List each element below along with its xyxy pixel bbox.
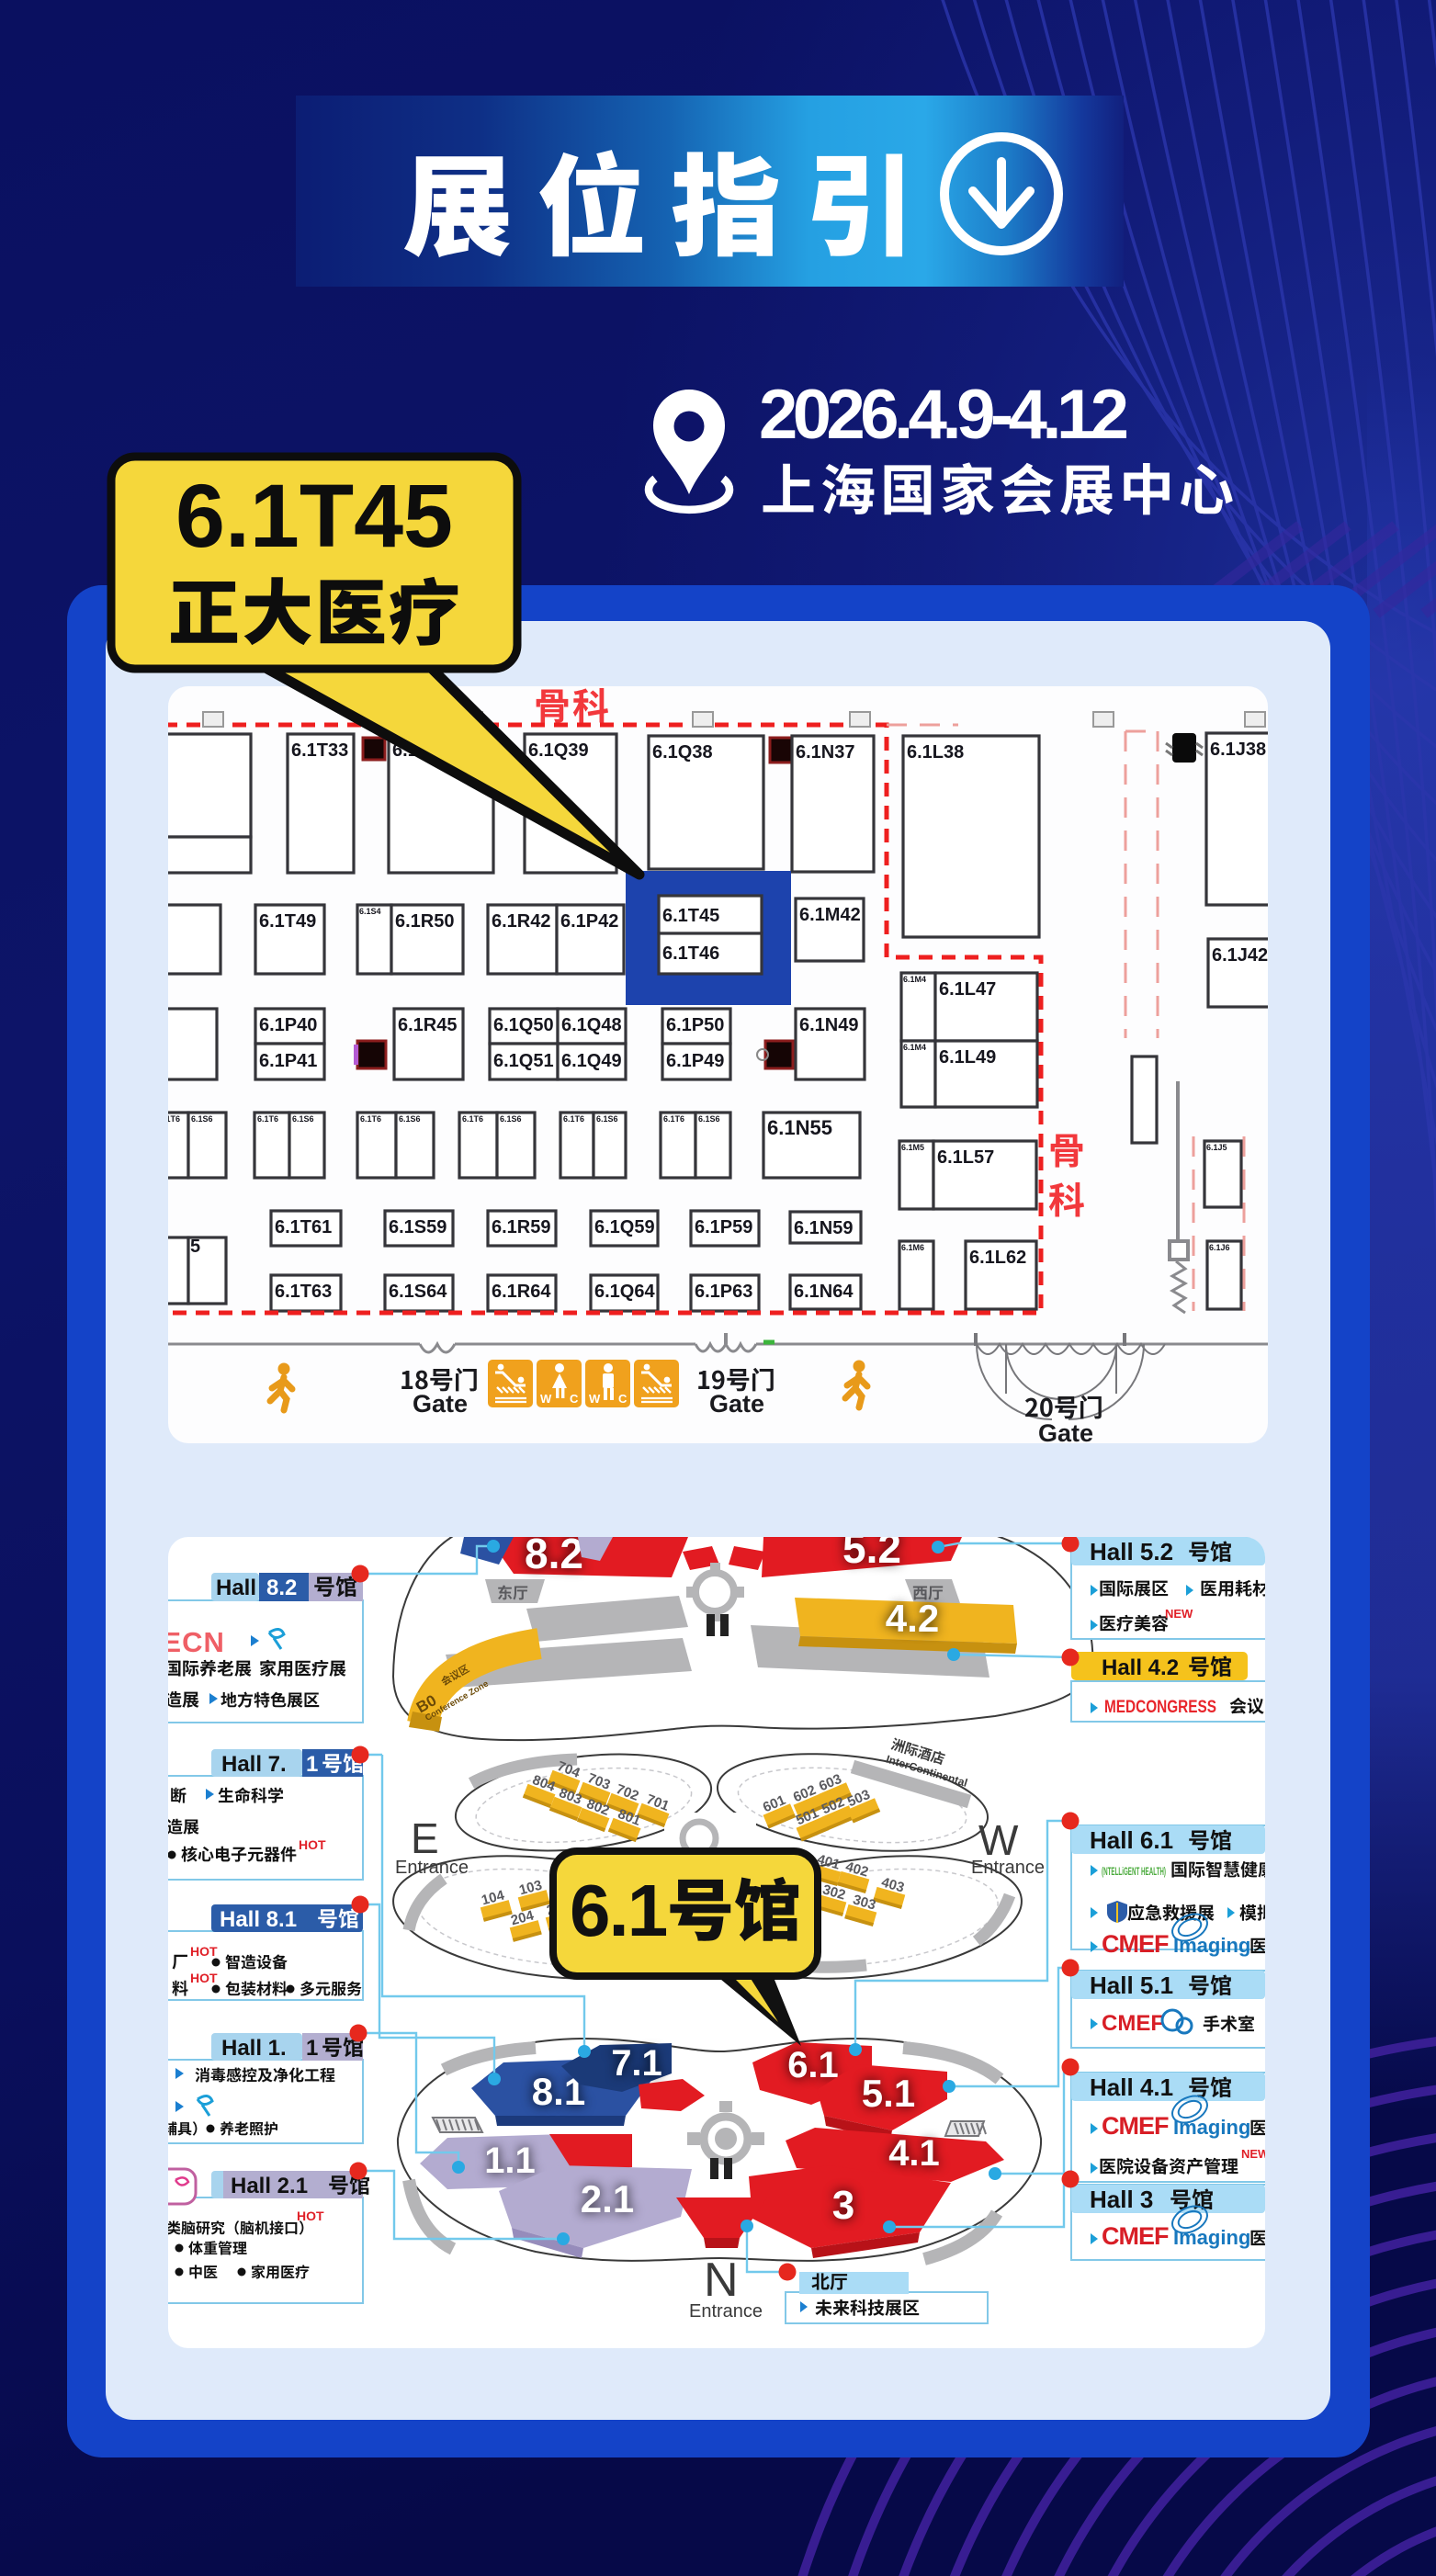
- svg-text:Entrance: Entrance: [689, 2301, 763, 2322]
- svg-text:W: W: [540, 1392, 552, 1406]
- svg-text:Entrance: Entrance: [971, 1858, 1045, 1878]
- svg-text:CMEF: CMEF: [1102, 1930, 1169, 1958]
- svg-text:Hall 5.2: Hall 5.2: [1090, 1538, 1173, 1565]
- svg-text:Gate: Gate: [709, 1390, 764, 1418]
- svg-text:6.1R64: 6.1R64: [492, 1282, 551, 1302]
- svg-text:Hall 4.1: Hall 4.1: [1090, 2073, 1173, 2101]
- svg-text:6.1S6: 6.1S6: [399, 1114, 421, 1124]
- svg-text:Hall 2.1: Hall 2.1: [231, 2174, 308, 2198]
- svg-text:6.1S59: 6.1S59: [389, 1217, 447, 1237]
- svg-text:4.1: 4.1: [888, 2133, 940, 2174]
- svg-text:6.1P41: 6.1P41: [259, 1051, 317, 1071]
- svg-text:8.2: 8.2: [525, 1537, 583, 1577]
- svg-text:6.1L49: 6.1L49: [939, 1047, 996, 1068]
- svg-text:6.1N59: 6.1N59: [794, 1218, 854, 1238]
- svg-text:HOT: HOT: [297, 2209, 324, 2223]
- svg-text:6.1T6: 6.1T6: [257, 1114, 278, 1124]
- svg-text:6.1S64: 6.1S64: [389, 1282, 447, 1302]
- svg-text:6.1L38: 6.1L38: [907, 742, 964, 763]
- svg-text:CMEF: CMEF: [1102, 2112, 1169, 2140]
- svg-text:E: E: [411, 1814, 439, 1862]
- svg-text:Hall 5.1: Hall 5.1: [1090, 1972, 1173, 1999]
- svg-text:6.1P49: 6.1P49: [666, 1051, 724, 1071]
- svg-text:6.1Q59: 6.1Q59: [594, 1217, 655, 1237]
- svg-text:5: 5: [190, 1237, 200, 1257]
- svg-text:6.1Q51: 6.1Q51: [493, 1051, 554, 1071]
- svg-text:6.1S6: 6.1S6: [292, 1114, 314, 1124]
- svg-text:6.1T6: 6.1T6: [663, 1114, 684, 1124]
- svg-text:6.1J5: 6.1J5: [1206, 1143, 1227, 1152]
- svg-text:6.1S6: 6.1S6: [698, 1114, 720, 1124]
- svg-text:1: 1: [306, 1752, 318, 1777]
- svg-text:6.1J38: 6.1J38: [1210, 740, 1266, 760]
- svg-text:1: 1: [306, 2036, 318, 2061]
- svg-text:C: C: [570, 1392, 579, 1406]
- svg-text:6.1R59: 6.1R59: [492, 1217, 551, 1237]
- svg-text:6.1Q64: 6.1Q64: [594, 1282, 655, 1302]
- svg-text:6.1J42: 6.1J42: [1212, 945, 1268, 966]
- svg-text:6.1P63: 6.1P63: [695, 1282, 752, 1302]
- svg-text:Imaging: Imaging: [1173, 1934, 1250, 1957]
- svg-text:Imaging: Imaging: [1173, 2226, 1250, 2249]
- svg-text:Hall 7.: Hall 7.: [221, 1752, 287, 1777]
- svg-text:N: N: [704, 2254, 739, 2307]
- svg-text:6.1R45: 6.1R45: [398, 1015, 458, 1035]
- svg-text:CECN: CECN: [168, 1626, 225, 1658]
- svg-text:HOT: HOT: [190, 1971, 218, 1985]
- svg-text:NEW: NEW: [1241, 2147, 1265, 2161]
- svg-text:6.1L47: 6.1L47: [939, 979, 996, 1000]
- svg-text:1.1: 1.1: [484, 2141, 536, 2181]
- svg-text:Entrance: Entrance: [395, 1858, 469, 1878]
- svg-text:6.1S6: 6.1S6: [191, 1114, 213, 1124]
- svg-text:5.1: 5.1: [862, 2072, 915, 2115]
- svg-text:Imaging: Imaging: [1173, 2116, 1250, 2139]
- svg-text:6.1T61: 6.1T61: [275, 1217, 332, 1237]
- svg-text:6.1Q48: 6.1Q48: [561, 1015, 622, 1035]
- svg-text:Hall 6.1: Hall 6.1: [1090, 1826, 1173, 1854]
- svg-text:8.2: 8.2: [266, 1576, 297, 1600]
- svg-text:7.1: 7.1: [611, 2043, 662, 2084]
- svg-text:6.1Q49: 6.1Q49: [561, 1051, 622, 1071]
- svg-text:Hall: Hall: [216, 1576, 256, 1600]
- svg-text:6.1P40: 6.1P40: [259, 1015, 317, 1035]
- svg-text:6.1T6: 6.1T6: [168, 1114, 180, 1124]
- svg-text:W: W: [589, 1392, 601, 1406]
- svg-text:Hall 4.2: Hall 4.2: [1102, 1655, 1179, 1680]
- svg-text:Hall 8.1: Hall 8.1: [220, 1907, 297, 1932]
- svg-text:6.1T6: 6.1T6: [563, 1114, 584, 1124]
- svg-text:6.1P50: 6.1P50: [666, 1015, 724, 1035]
- svg-text:Hall 1.: Hall 1.: [221, 2036, 287, 2061]
- svg-text:5.2: 5.2: [842, 1537, 901, 1572]
- svg-text:6.1T6: 6.1T6: [360, 1114, 381, 1124]
- svg-text:6.1T6: 6.1T6: [462, 1114, 483, 1124]
- svg-text:Gate: Gate: [413, 1390, 468, 1418]
- svg-text:6.1N55: 6.1N55: [767, 1116, 832, 1139]
- svg-text:6.1S6: 6.1S6: [500, 1114, 522, 1124]
- svg-text:Hall 3: Hall 3: [1090, 2186, 1153, 2213]
- svg-text:CMEF: CMEF: [1102, 2222, 1169, 2250]
- svg-text:CMEF: CMEF: [1102, 2011, 1164, 2036]
- svg-text:6.1N49: 6.1N49: [799, 1015, 859, 1035]
- svg-text:6.1: 6.1: [787, 2045, 839, 2085]
- svg-text:6.1J6: 6.1J6: [1209, 1243, 1230, 1252]
- svg-text:6.1P59: 6.1P59: [695, 1217, 752, 1237]
- svg-text:6.1T46: 6.1T46: [662, 943, 719, 964]
- svg-text:6.1M4: 6.1M4: [903, 1043, 926, 1052]
- svg-text:(NTELLiGENT HEALTH): (NTELLiGENT HEALTH): [1102, 1865, 1166, 1878]
- svg-text:6.1Q50: 6.1Q50: [493, 1015, 554, 1035]
- svg-text:NEW: NEW: [1165, 1607, 1193, 1621]
- svg-text:4.2: 4.2: [886, 1597, 939, 1640]
- svg-text:6.1S6: 6.1S6: [596, 1114, 618, 1124]
- svg-text:6.1M4: 6.1M4: [903, 975, 926, 984]
- svg-text:6.1: 6.1: [570, 1870, 667, 1951]
- svg-text:C: C: [618, 1392, 628, 1406]
- svg-text:6.1M5: 6.1M5: [901, 1143, 924, 1152]
- svg-text:6.1T63: 6.1T63: [275, 1282, 332, 1302]
- svg-text:6.1N64: 6.1N64: [794, 1282, 854, 1302]
- svg-text:6.1M42: 6.1M42: [799, 905, 861, 925]
- svg-text:MEDCONGRESS: MEDCONGRESS: [1104, 1698, 1216, 1717]
- svg-text:6.1M6: 6.1M6: [901, 1243, 924, 1252]
- svg-text:2.1: 2.1: [581, 2177, 634, 2220]
- svg-text:HOT: HOT: [190, 1944, 218, 1959]
- svg-text:6.1N37: 6.1N37: [796, 742, 855, 763]
- svg-text:6.1L57: 6.1L57: [937, 1147, 994, 1168]
- svg-text:Gate: Gate: [1038, 1419, 1093, 1443]
- svg-text:6.1L62: 6.1L62: [969, 1248, 1026, 1268]
- svg-text:HOT: HOT: [299, 1837, 326, 1852]
- svg-text:6.1T45: 6.1T45: [175, 466, 453, 566]
- svg-text:3: 3: [832, 2183, 854, 2228]
